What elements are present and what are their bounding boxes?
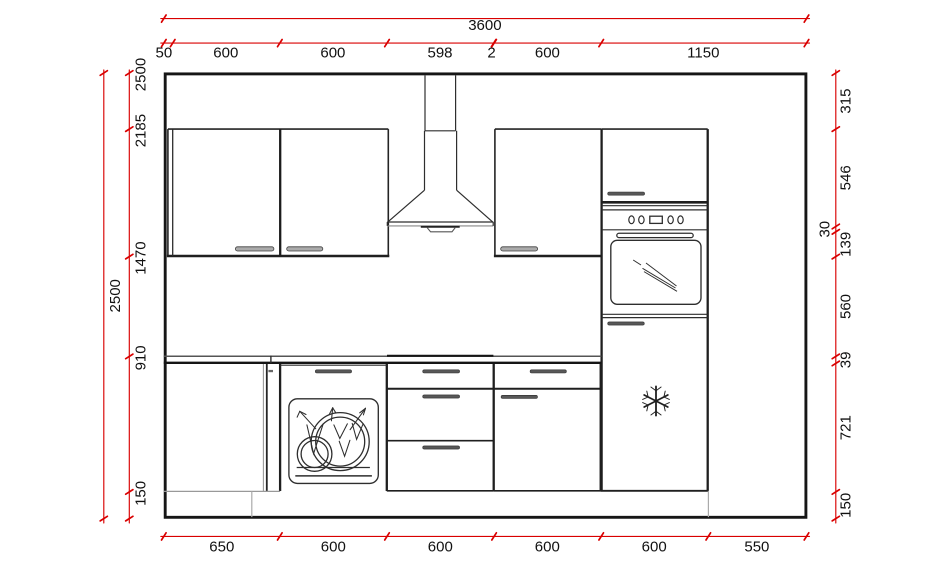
svg-text:600: 600 <box>535 44 560 61</box>
svg-text:600: 600 <box>428 538 453 555</box>
svg-text:50: 50 <box>156 44 173 61</box>
svg-text:721: 721 <box>838 415 855 440</box>
svg-text:600: 600 <box>213 44 238 61</box>
svg-text:1470: 1470 <box>132 241 149 274</box>
svg-text:560: 560 <box>838 294 855 319</box>
svg-text:650: 650 <box>209 538 234 555</box>
svg-text:2185: 2185 <box>132 114 149 147</box>
svg-text:39: 39 <box>838 352 855 369</box>
svg-text:2500: 2500 <box>107 279 124 312</box>
svg-text:150: 150 <box>132 481 149 506</box>
svg-text:1150: 1150 <box>687 44 719 61</box>
svg-text:598: 598 <box>427 44 452 61</box>
svg-text:546: 546 <box>838 165 855 190</box>
svg-text:3600: 3600 <box>468 17 501 34</box>
svg-text:910: 910 <box>132 345 149 370</box>
svg-text:315: 315 <box>838 89 855 114</box>
svg-text:150: 150 <box>838 493 855 518</box>
svg-text:139: 139 <box>838 232 855 257</box>
svg-text:600: 600 <box>321 538 346 555</box>
svg-text:30: 30 <box>816 221 833 238</box>
svg-text:2500: 2500 <box>132 58 149 91</box>
svg-text:2: 2 <box>487 44 495 61</box>
svg-text:600: 600 <box>642 538 667 555</box>
svg-text:600: 600 <box>535 538 560 555</box>
svg-text:550: 550 <box>744 538 769 555</box>
svg-text:600: 600 <box>320 44 345 61</box>
